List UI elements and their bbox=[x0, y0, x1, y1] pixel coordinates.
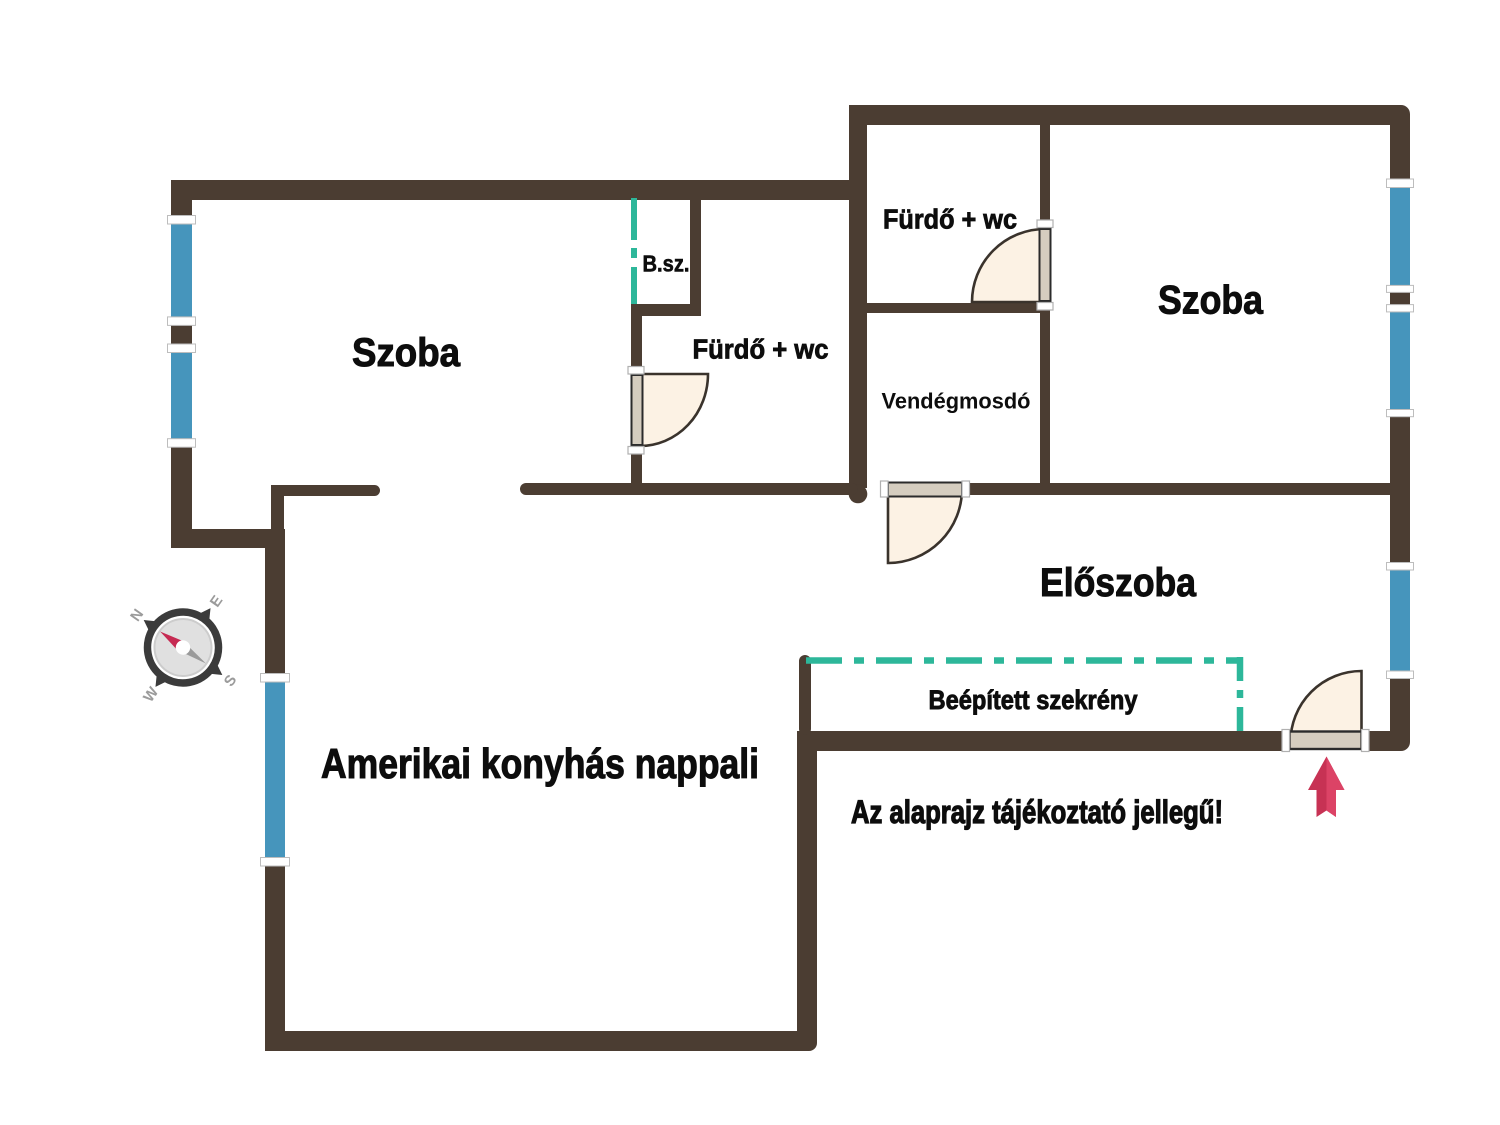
svg-text:Fürdő + wc: Fürdő + wc bbox=[693, 334, 829, 365]
svg-text:B.sz.: B.sz. bbox=[643, 251, 690, 277]
svg-text:Vendégmosdó: Vendégmosdó bbox=[882, 389, 1031, 414]
svg-text:Előszoba: Előszoba bbox=[1040, 561, 1197, 605]
svg-text:Szoba: Szoba bbox=[352, 331, 461, 375]
svg-text:Beépített szekrény: Beépített szekrény bbox=[929, 685, 1138, 715]
svg-text:Fürdő + wc: Fürdő + wc bbox=[883, 204, 1017, 235]
svg-text:Az alaprajz tájékoztató jelleg: Az alaprajz tájékoztató jellegű! bbox=[851, 794, 1223, 830]
svg-text:Amerikai konyhás nappali: Amerikai konyhás nappali bbox=[321, 740, 759, 787]
svg-text:Szoba: Szoba bbox=[1158, 279, 1264, 323]
